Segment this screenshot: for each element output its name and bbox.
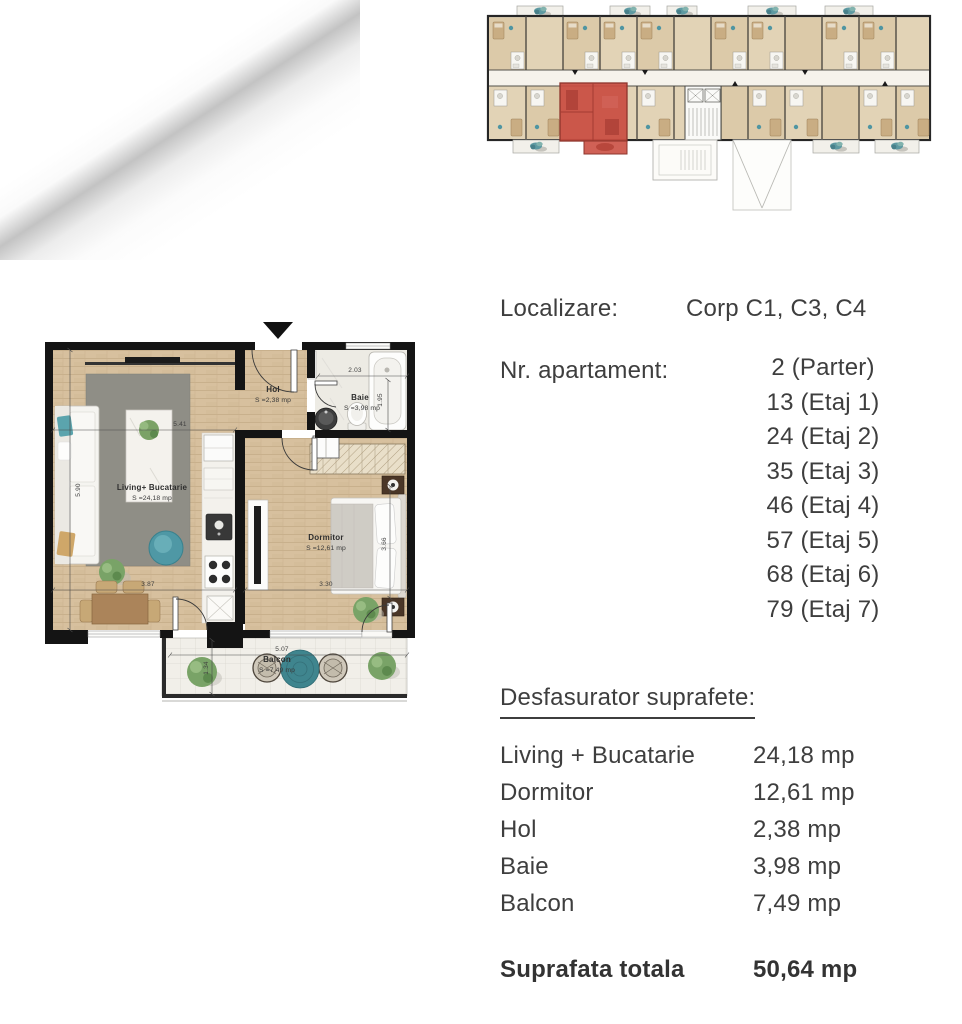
overview-entrance-structures [653, 140, 791, 210]
surface-row: Dormitor 12,61 mp [500, 779, 930, 816]
apartment-number-list: 2 (Parter) 13 (Etaj 1) 24 (Etaj 2) 35 (E… [733, 351, 913, 627]
surface-row: Living + Bucatarie 24,18 mp [500, 742, 930, 779]
bedroom-label: Dormitor [308, 533, 343, 542]
bedroom-area: S =12,61 mp [306, 545, 346, 552]
surface-value: 12,61 mp [753, 779, 855, 807]
apartment-number-item: 57 (Etaj 5) [733, 524, 913, 559]
surface-label: Balcon [500, 890, 575, 917]
total-value: 50,64 mp [753, 956, 857, 984]
surface-row: Balcon 7,49 mp [500, 890, 930, 927]
surface-value: 24,18 mp [753, 742, 855, 770]
bathtub [369, 352, 406, 430]
balcony-area: S =7,49 mp [259, 667, 295, 674]
surface-value: 3,98 mp [753, 853, 841, 881]
balcony-label: Balcon [263, 655, 291, 664]
surface-label: Dormitor [500, 779, 594, 806]
armchair [149, 531, 183, 565]
nightstand [382, 476, 404, 494]
hall-area: S =2,38 mp [255, 397, 291, 404]
tv-unit [248, 500, 268, 590]
dim-dormitor-width: 3.30 [319, 581, 333, 588]
dim-living-depth: 5.90 [75, 483, 82, 497]
stove [205, 556, 233, 588]
apartment-number-item: 24 (Etaj 2) [733, 420, 913, 455]
dim-baie-width: 2.03 [348, 367, 362, 374]
building-floor-plan-overview [485, 4, 935, 214]
entrance-arrow-icon [263, 322, 293, 339]
apartment-number-item: 35 (Etaj 3) [733, 455, 913, 490]
kitchen-cabinet [207, 596, 233, 620]
apartment-number-item: 68 (Etaj 6) [733, 558, 913, 593]
dim-living-bottom: 3.87 [141, 581, 155, 588]
apartment-number-item: 46 (Etaj 4) [733, 489, 913, 524]
page-corner-shadow [0, 0, 360, 260]
dim-balcon-depth: 1.34 [203, 661, 210, 675]
balcony-chair [319, 654, 347, 682]
surface-row: Baie 3,98 mp [500, 853, 930, 890]
hall-label: Hol [266, 385, 280, 394]
living-room-area: S =24,18 mp [132, 495, 172, 502]
location-label: Localizare: [500, 295, 618, 323]
overview-corridor [489, 70, 929, 86]
surface-label: Hol [500, 816, 537, 843]
living-room-label: Living+ Bucatarie [117, 483, 188, 492]
surface-value: 2,38 mp [753, 816, 841, 844]
floor-plan-brochure-page: 5.41 5.90 3.87 3.30 2.03 1.95 3.66 5.07 … [0, 0, 962, 1024]
apartment-number-label: Nr. apartament: [500, 357, 668, 385]
tv [125, 357, 180, 363]
location-value: Corp C1, C3, C4 [686, 295, 866, 323]
apartment-floor-plan: 5.41 5.90 3.87 3.30 2.03 1.95 3.66 5.07 … [30, 318, 430, 718]
apartment-number-item: 13 (Etaj 1) [733, 386, 913, 421]
dim-dormitor-depth: 3.66 [381, 537, 388, 551]
surface-row: Hol 2,38 mp [500, 816, 930, 853]
apartment-number-item: 2 (Parter) [733, 351, 913, 386]
nightstand [382, 598, 404, 616]
kitchen-sink [206, 514, 232, 540]
dim-living-width: 5.41 [173, 421, 187, 428]
highlighted-apartment-unit [560, 83, 627, 154]
total-label: Suprafata totala [500, 956, 685, 983]
surface-value: 7,49 mp [753, 890, 841, 918]
surfaces-title: Desfasurator suprafete: [500, 684, 755, 719]
bathroom-area: S =3,98 mp [344, 405, 380, 412]
bathroom-sink [315, 408, 337, 430]
surface-label: Baie [500, 853, 549, 880]
total-surface-row: Suprafata totala 50,64 mp [500, 956, 930, 993]
bathroom-label: Baie [351, 393, 369, 402]
surface-label: Living + Bucatarie [500, 742, 695, 769]
overview-building-body [488, 16, 930, 154]
dim-balcon-width: 5.07 [275, 646, 289, 653]
overview-stair-core [685, 86, 721, 140]
apartment-number-item: 79 (Etaj 7) [733, 593, 913, 628]
